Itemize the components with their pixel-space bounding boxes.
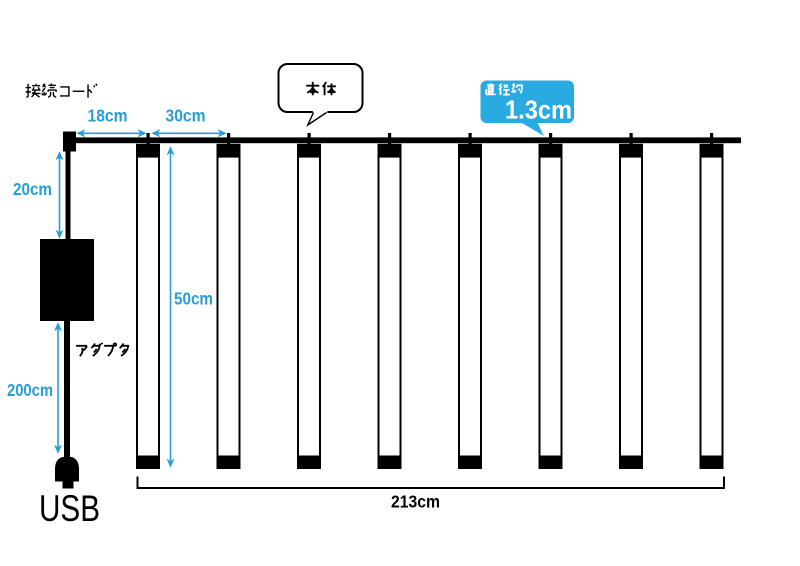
svg-text:30cm: 30cm xyxy=(166,106,206,126)
svg-text:1.3cm: 1.3cm xyxy=(505,95,572,125)
svg-text:18cm: 18cm xyxy=(88,106,128,126)
svg-text:USB: USB xyxy=(39,488,100,529)
svg-text:50cm: 50cm xyxy=(174,289,213,309)
svg-text:20cm: 20cm xyxy=(13,179,52,199)
svg-text:213cm: 213cm xyxy=(391,492,440,512)
svg-text:200cm: 200cm xyxy=(7,380,53,400)
